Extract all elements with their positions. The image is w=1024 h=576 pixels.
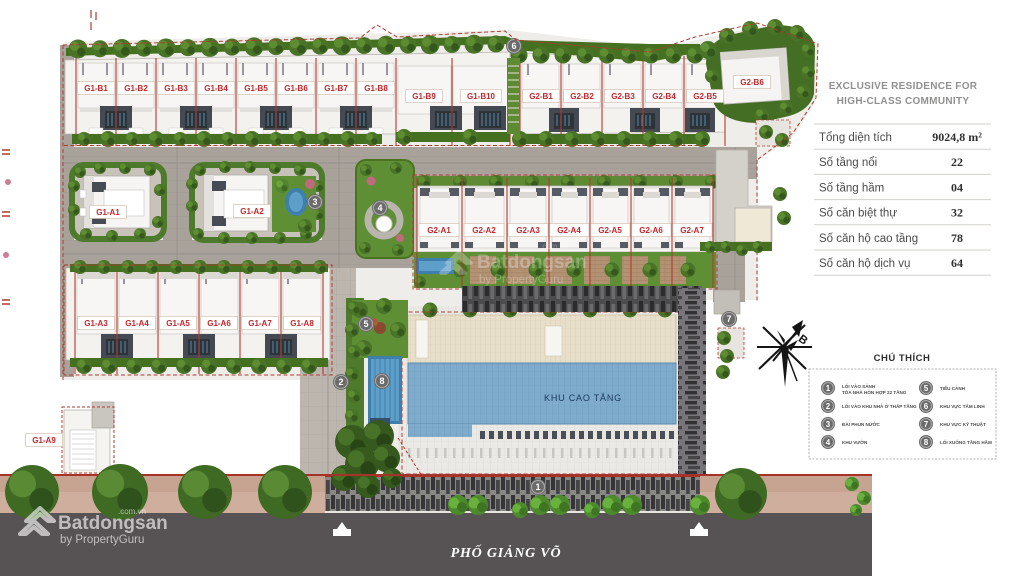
svg-text:G2-B2: G2-B2: [570, 92, 594, 101]
svg-text:G2-A6: G2-A6: [639, 226, 663, 235]
svg-text:G1-A8: G1-A8: [290, 319, 314, 328]
svg-text:G1-B9: G1-B9: [412, 92, 436, 101]
svg-text:G1-A4: G1-A4: [125, 319, 149, 328]
svg-text:G1-B5: G1-B5: [244, 84, 268, 93]
svg-text:5: 5: [363, 319, 368, 329]
svg-text:G1-A7: G1-A7: [248, 319, 272, 328]
svg-text:G2-A1: G2-A1: [427, 226, 451, 235]
svg-text:G1-A6: G1-A6: [207, 319, 231, 328]
svg-text:2: 2: [338, 377, 343, 387]
svg-text:EXCLUSIVE RESIDENCE FOR: EXCLUSIVE RESIDENCE FOR: [829, 81, 978, 92]
svg-text:PHỐ GIẢNG VÕ: PHỐ GIẢNG VÕ: [451, 543, 562, 561]
svg-text:G1-B7: G1-B7: [324, 84, 348, 93]
svg-text:G2-B1: G2-B1: [529, 92, 553, 101]
svg-text:Số tầng hầm: Số tầng hầm: [819, 182, 884, 194]
svg-text:Số căn biệt thự: Số căn biệt thự: [819, 208, 897, 220]
svg-text:by PropertyGuru: by PropertyGuru: [479, 274, 563, 286]
svg-text:G1-A5: G1-A5: [166, 319, 190, 328]
svg-text:Số căn hộ cao tầng: Số căn hộ cao tầng: [819, 233, 918, 245]
svg-text:1: 1: [535, 482, 540, 492]
svg-text:G2-A2: G2-A2: [472, 226, 496, 235]
svg-text:G2-B6: G2-B6: [740, 78, 764, 87]
svg-text:3: 3: [312, 197, 317, 207]
svg-text:G2-A5: G2-A5: [598, 226, 622, 235]
svg-text:G2-A3: G2-A3: [516, 226, 540, 235]
svg-text:.com.vn: .com.vn: [540, 242, 568, 251]
svg-text:G1-A2: G1-A2: [240, 207, 264, 216]
svg-text:2: 2: [826, 402, 831, 411]
svg-text:ĐÀI PHUN NƯỚC: ĐÀI PHUN NƯỚC: [842, 420, 881, 427]
svg-text:LỐI VÀO KHU NHÀ Ở THẤP TẦNG: LỐI VÀO KHU NHÀ Ở THẤP TẦNG: [842, 403, 917, 409]
svg-text:G2-B4: G2-B4: [652, 92, 676, 101]
svg-text:G1-B4: G1-B4: [204, 84, 228, 93]
svg-text:04: 04: [951, 180, 963, 194]
svg-text:G2-A4: G2-A4: [557, 226, 581, 235]
svg-text:Batdongsan: Batdongsan: [58, 513, 168, 534]
svg-text:9024,8 m²: 9024,8 m²: [932, 130, 982, 144]
svg-text:G1-B8: G1-B8: [364, 84, 388, 93]
svg-text:G1-A3: G1-A3: [84, 319, 108, 328]
svg-text:4: 4: [377, 203, 382, 213]
svg-text:LỐI VÀO SẢNH: LỐI VÀO SẢNH: [842, 383, 876, 389]
svg-text:LỐI XUỐNG TẦNG HẦM: LỐI XUỐNG TẦNG HẦM: [940, 439, 992, 445]
svg-text:5: 5: [924, 384, 929, 393]
svg-text:.com.vn: .com.vn: [118, 507, 146, 516]
svg-text:KHU VỰC TÂM LINH: KHU VỰC TÂM LINH: [940, 403, 985, 409]
svg-text:7: 7: [924, 420, 929, 429]
svg-text:CHÚ THÍCH: CHÚ THÍCH: [874, 352, 931, 364]
svg-text:Batdongsan: Batdongsan: [477, 252, 587, 273]
svg-text:8: 8: [924, 438, 929, 447]
svg-text:G1-B1: G1-B1: [84, 84, 108, 93]
svg-text:64: 64: [951, 256, 963, 270]
svg-text:G1-B10: G1-B10: [467, 92, 496, 101]
svg-text:G1-A1: G1-A1: [96, 208, 120, 217]
svg-text:6: 6: [511, 41, 516, 51]
svg-text:KHU VỰC KỸ THUẬT: KHU VỰC KỸ THUẬT: [940, 421, 986, 427]
svg-text:TIỂU CẢNH: TIỂU CẢNH: [940, 385, 966, 391]
svg-text:8: 8: [379, 376, 384, 386]
svg-text:by PropertyGuru: by PropertyGuru: [60, 534, 144, 546]
svg-text:22: 22: [951, 155, 963, 169]
svg-text:KHU CAO TẮNG: KHU CAO TẮNG: [544, 393, 622, 403]
svg-text:G2-B5: G2-B5: [693, 92, 717, 101]
svg-text:78: 78: [951, 231, 963, 245]
svg-text:TÒA NHÀ HỖN HỢP 22 TẦNG: TÒA NHÀ HỖN HỢP 22 TẦNG: [842, 388, 907, 395]
svg-text:7: 7: [726, 314, 731, 324]
svg-text:G2-B3: G2-B3: [611, 92, 635, 101]
svg-text:G1-B2: G1-B2: [124, 84, 148, 93]
svg-text:G1-A9: G1-A9: [32, 436, 56, 445]
svg-text:1: 1: [826, 384, 831, 393]
svg-text:G2-A7: G2-A7: [680, 226, 704, 235]
svg-text:Số căn hộ dịch vụ: Số căn hộ dịch vụ: [819, 258, 910, 270]
svg-text:G1-B3: G1-B3: [164, 84, 188, 93]
svg-text:6: 6: [924, 402, 929, 411]
svg-text:4: 4: [826, 438, 831, 447]
svg-text:Tổng diện tích: Tổng diện tích: [819, 132, 892, 144]
svg-text:HIGH-CLASS COMMUNITY: HIGH-CLASS COMMUNITY: [837, 96, 970, 107]
svg-text:G1-B6: G1-B6: [284, 84, 308, 93]
svg-text:32: 32: [951, 206, 963, 220]
svg-text:Số tầng nổi: Số tầng nổi: [819, 157, 877, 169]
svg-text:KHU VƯỜN: KHU VƯỜN: [842, 438, 868, 445]
svg-text:3: 3: [826, 420, 831, 429]
